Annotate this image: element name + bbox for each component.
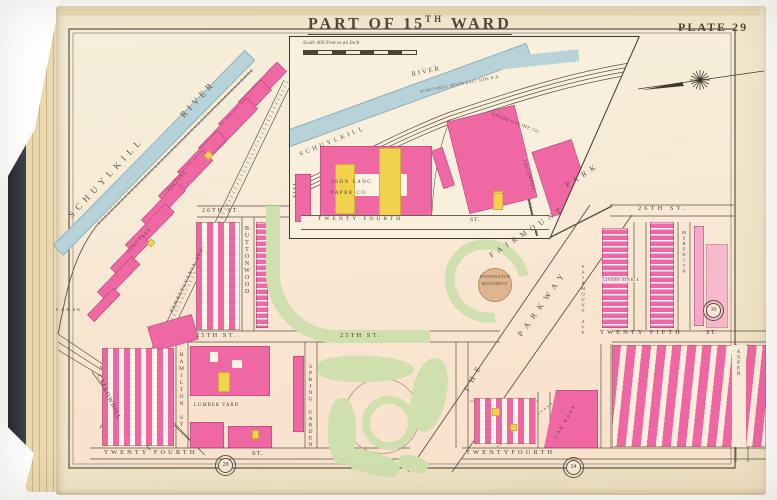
frame-building <box>492 408 500 416</box>
compass-rose-icon <box>630 58 770 103</box>
house-cluster <box>196 222 240 330</box>
building-courtyard <box>210 352 218 362</box>
house-cluster <box>102 348 174 446</box>
street-label-twenty-fourth-west: TWENTY FOURTH <box>104 450 197 457</box>
plate-ref-south-west: 28 <box>218 458 233 473</box>
label-lumber-yard: LUMBER YARD <box>194 404 239 409</box>
street-label-fairmount-ave: FAIRMOUNT AVE. <box>580 264 585 341</box>
street-label-buttonwood: BUTTONWOOD <box>244 226 250 296</box>
house-row <box>650 222 674 328</box>
inset-border-left <box>289 36 290 239</box>
atlas-photo: Scale 400 Feet to an Inch PART OF 15TH W… <box>0 0 777 500</box>
label-railroad: P. & R. R.R. <box>56 308 82 312</box>
street-label-twenty-fifth: TWENTY FIFTH <box>600 330 683 337</box>
scale-caption: Scale 400 Feet to an Inch <box>303 41 359 47</box>
label-livery-stable: LIVERY STABLE <box>602 278 641 282</box>
title-prefix: PART OF 15 <box>308 15 425 32</box>
street-label-spring-garden: SPRING GARDEN <box>307 364 313 449</box>
inset-border-top <box>289 36 639 37</box>
house-row <box>293 356 304 432</box>
inset-street-24th-label: TWENTY FOURTH <box>318 217 403 223</box>
frame-building <box>218 372 230 392</box>
plate-number: PLATE 29 <box>678 21 748 33</box>
page-title: PART OF 15TH WARD <box>308 15 512 35</box>
street-label-meredith: MEREDITH <box>681 230 686 274</box>
frame-building <box>252 430 259 439</box>
building <box>190 422 224 448</box>
monument-label-line2: MONUMENT <box>471 283 519 287</box>
frame-building <box>510 424 517 431</box>
building <box>228 426 272 448</box>
building-courtyard <box>232 360 242 368</box>
plaza-green-nw <box>318 356 414 382</box>
street-label-hamilton: HAMILTON ST <box>178 352 184 429</box>
street-label-26th-east: 26TH ST. <box>638 206 688 213</box>
plate-ref-east: 30 <box>706 303 721 318</box>
inset-paper-co-label-line1: JOHN LANG <box>331 180 372 185</box>
street-label-25th-west: 25TH ST. <box>196 333 238 340</box>
monument-label-line1: WASHINGTON <box>471 276 519 280</box>
inset-frame-building <box>379 148 401 220</box>
inset-frame-building <box>493 193 503 210</box>
factory-block <box>190 346 270 396</box>
street-label-26th-west: 26TH ST. <box>202 208 242 214</box>
street-label-25th-mid: 25TH ST. <box>340 333 382 340</box>
street-label-twenty-fourth-east: TWENTYFOURTH <box>466 450 555 457</box>
plaza-green-ring <box>362 396 416 450</box>
plate-ref-south-east: 24 <box>566 460 581 475</box>
house-row <box>694 226 704 326</box>
title-suffix: WARD <box>451 15 512 32</box>
street-label-twenty-fifth-st: ST. <box>706 330 718 337</box>
inset-street-24th-st: ST. <box>470 218 480 224</box>
house-cluster <box>474 398 536 444</box>
street-label-aspen: ASPEN <box>736 350 741 378</box>
title-superscript: TH <box>425 14 444 24</box>
street-label-twenty-fourth-west-st: ST. <box>252 451 264 458</box>
inset-paper-co-label-line2: PAPER CO. <box>331 191 369 196</box>
inset-frame-building <box>335 164 355 214</box>
scale-bar <box>303 50 417 55</box>
